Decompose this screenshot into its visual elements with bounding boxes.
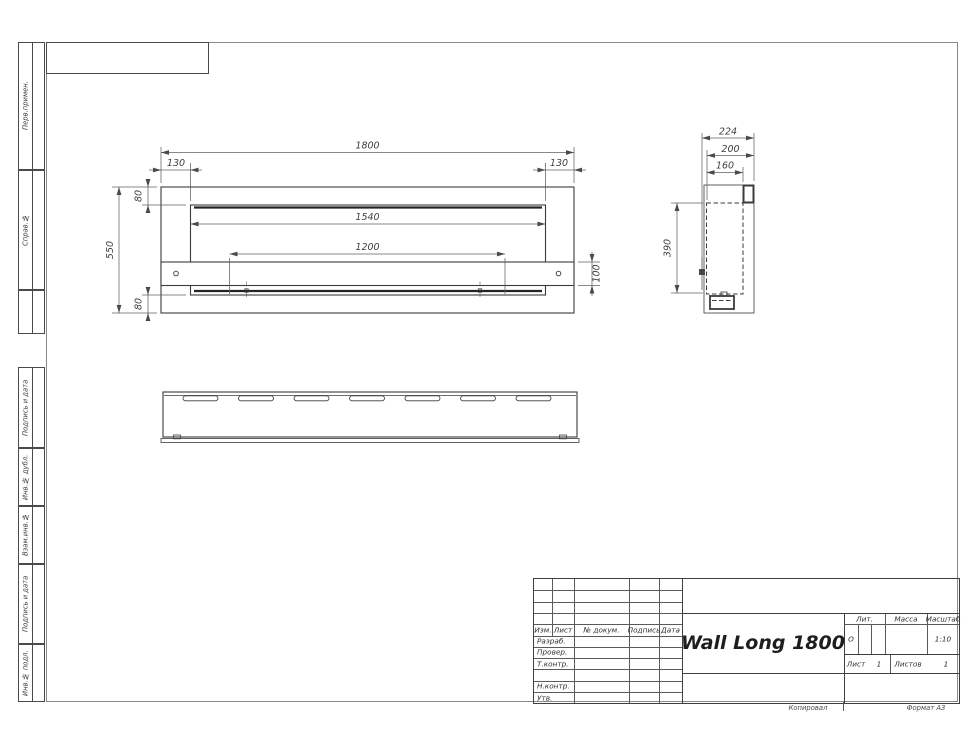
sheet-label: Лист [847,659,866,668]
margin-label: Перв.примен. [19,43,32,169]
footer-divider [843,702,844,711]
margin-box-sprav-no: Справ.№ [18,170,45,290]
sheets-value: 1 [944,659,949,668]
col-date: Дата [661,626,680,635]
margin-divider [32,645,33,701]
margin-box-podpis-data-1: Подпись и дата [18,367,45,448]
margin-label: Подпись и дата [19,565,32,643]
margin-divider [32,449,33,505]
format-note: Формат А3 [907,704,946,712]
drawing-sheet: Перв.примен. Справ.№ Подпись и дата Инв.… [0,0,970,749]
designation-box [46,42,209,74]
row-nkontr: Н.контр. [537,682,570,691]
margin-box-inv-podl: Инв.№ подл. [18,644,45,702]
col-izm: Изм. [534,626,551,635]
margin-label: Взам.инв.№ [19,507,32,563]
margin-box-podpis-data-2: Подпись и дата [18,564,45,644]
scale-label: Масштаб [926,614,961,623]
lit-value: О [848,635,854,644]
margin-divider [32,291,33,333]
sheets-label: Листов [894,659,921,668]
title-block: Изм. Лист № докум. Подпись Дата Разраб. … [533,578,960,704]
copy-note: Копировал [789,704,828,712]
margin-label: Инв.№ подл. [19,645,32,701]
margin-divider [32,368,33,447]
sheet-value: 1 [877,659,882,668]
lit-label: Лит. [856,614,873,623]
margin-label: Подпись и дата [19,368,32,447]
col-doc: № докум. [584,626,620,635]
mass-label: Масса [894,614,917,623]
product-name: Wall Long 1800 [681,632,845,654]
margin-label: Справ.№ [19,171,32,289]
row-razrab: Разраб. [537,637,566,646]
margin-divider [32,565,33,643]
margin-box-blank [18,290,45,334]
col-list: Лист [554,626,573,635]
row-prover: Провер. [537,648,567,657]
margin-box-vzam-inv: Взам.инв.№ [18,506,45,564]
margin-label: Инв.№ дубл. [19,449,32,505]
margin-box-perv-primen: Перв.примен. [18,42,45,170]
margin-divider [32,43,33,169]
row-utv: Утв. [537,693,552,702]
col-sign: Подпись [628,626,661,635]
margin-box-inv-dubl: Инв.№ дубл. [18,448,45,506]
row-tkontr: Т.контр. [537,659,569,668]
margin-divider [32,171,33,289]
scale-value: 1:10 [935,635,951,644]
margin-divider [32,507,33,563]
margin-label [19,291,32,333]
